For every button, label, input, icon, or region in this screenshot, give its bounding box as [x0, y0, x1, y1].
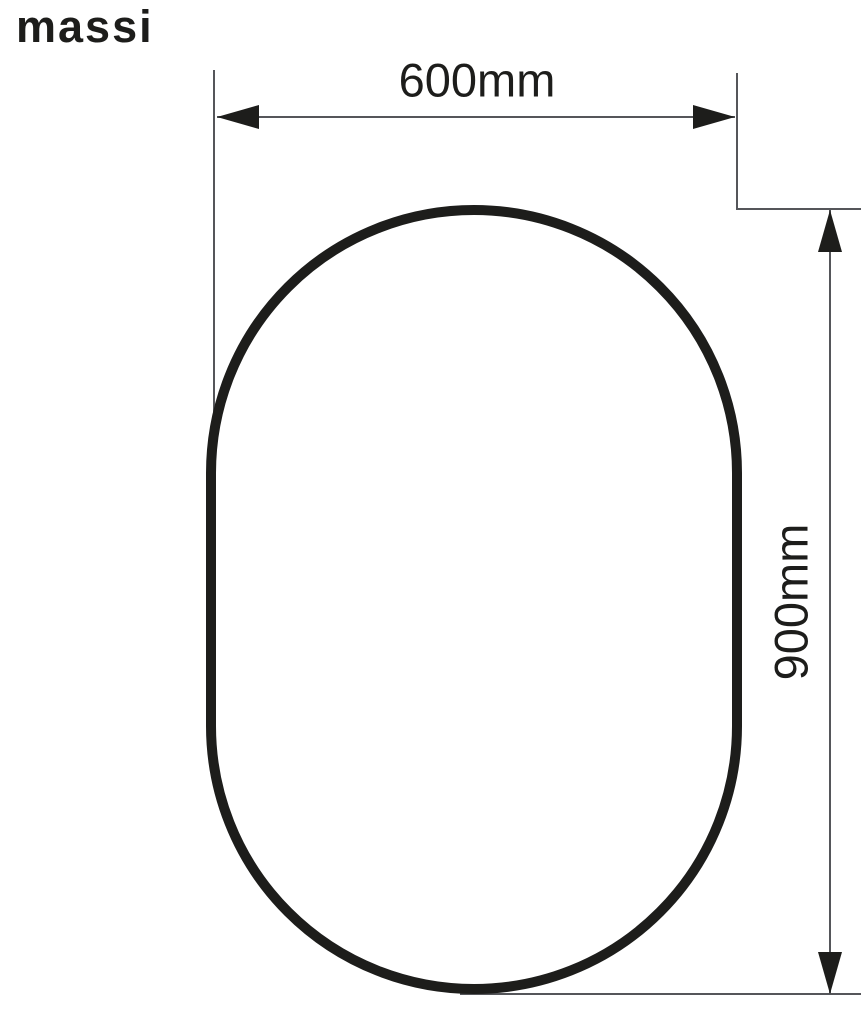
arrowhead-down-icon [818, 952, 842, 994]
step-connector-line [736, 208, 861, 210]
height-dimension-line [829, 210, 831, 993]
width-extension-line-right [736, 73, 738, 210]
width-extension-line-left [213, 70, 215, 440]
oval-mirror-outline [206, 205, 742, 994]
height-dimension-label: 900mm [768, 524, 815, 681]
arrowhead-left-icon [217, 105, 259, 129]
arrowhead-up-icon [818, 210, 842, 252]
arrowhead-right-icon [693, 105, 735, 129]
width-dimension-line [217, 116, 735, 118]
brand-logo: massi [16, 2, 154, 52]
dimension-diagram-canvas: massi 600mm 900mm [0, 0, 861, 1020]
width-dimension-label: 600mm [399, 57, 556, 104]
bottom-extension-line [460, 993, 861, 995]
